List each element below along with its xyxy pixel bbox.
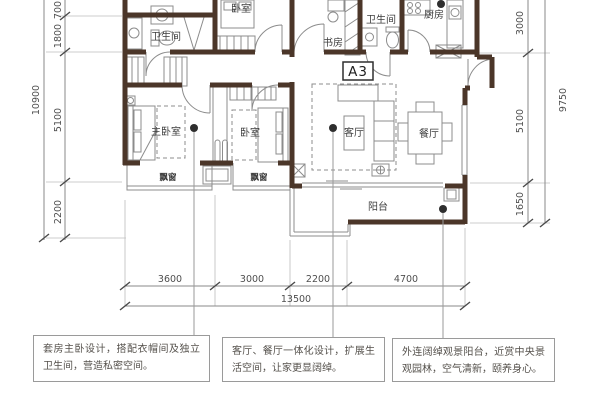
room-label-balcony: 阳台 xyxy=(368,200,388,213)
room-label-master-bedroom: 主卧室 xyxy=(151,125,181,138)
dim-left-5100: 5100 xyxy=(53,108,64,132)
floor-plan-page: 700 1800 5100 2200 10900 3000 5100 1650 … xyxy=(0,0,600,400)
room-label-master-bathroom: 卫生间 xyxy=(151,30,181,43)
dim-right-5100: 5100 xyxy=(515,109,526,133)
dim-right-1650: 1650 xyxy=(515,192,526,216)
annotation-text-master-suite: 套房主卧设计，搭配衣帽间及独立卫生间，营造私密空间。 xyxy=(43,344,200,372)
callout-dot-balcony xyxy=(439,205,447,213)
annotation-box-balcony: 外连阔绰观景阳台，近赏中央景观园林，空气清新，颐养身心。 xyxy=(392,338,555,382)
callout-dot-kitchen xyxy=(437,0,445,8)
room-label-study: 书房 xyxy=(323,36,343,49)
unit-label-box: A3 xyxy=(343,62,373,80)
dim-left-1800: 1800 xyxy=(53,24,64,48)
annotation-text-balcony: 外连阔绰观景阳台，近赏中央景观园林，空气清新，颐养身心。 xyxy=(402,347,545,375)
room-label-public-bathroom: 卫生间 xyxy=(366,13,396,26)
dim-bottom-total: 13500 xyxy=(281,294,311,305)
annotation-text-living-dining: 客厅、餐厅一体化设计，扩展生活空间，让家更显阔绰。 xyxy=(232,346,375,374)
room-label-bay-window-left: 飘窗 xyxy=(159,172,177,183)
dim-bottom-3000: 3000 xyxy=(240,274,264,285)
annotation-box-master-suite: 套房主卧设计，搭配衣帽间及独立卫生间，营造私密空间。 xyxy=(33,335,210,382)
annotation-box-living-dining: 客厅、餐厅一体化设计，扩展生活空间，让家更显阔绰。 xyxy=(222,337,385,382)
room-label-dining-room: 餐厅 xyxy=(419,127,439,140)
dim-left-2200: 2200 xyxy=(53,200,64,224)
unit-label: A3 xyxy=(348,64,368,80)
dim-bottom-4700: 4700 xyxy=(394,274,418,285)
callout-dot-master xyxy=(190,124,198,132)
dimension-labels: 700 1800 5100 2200 10900 3000 5100 1650 … xyxy=(31,1,569,305)
room-label-kitchen: 厨房 xyxy=(424,8,444,21)
dim-bottom-2200: 2200 xyxy=(306,274,330,285)
extension-lines xyxy=(46,16,550,306)
dim-right-3000: 3000 xyxy=(515,11,526,35)
callout-dot-living xyxy=(329,124,337,132)
room-label-bedroom-top: 卧室 xyxy=(231,2,251,15)
dim-left-total: 10900 xyxy=(31,85,42,115)
dim-bottom-3600: 3600 xyxy=(158,274,182,285)
room-label-living-room: 客厅 xyxy=(344,126,364,139)
dim-right-total: 9750 xyxy=(558,88,569,112)
dim-left-700: 700 xyxy=(53,1,64,19)
room-label-bay-window-right: 飘窗 xyxy=(250,172,268,183)
room-label-second-bedroom: 卧室 xyxy=(240,126,260,139)
